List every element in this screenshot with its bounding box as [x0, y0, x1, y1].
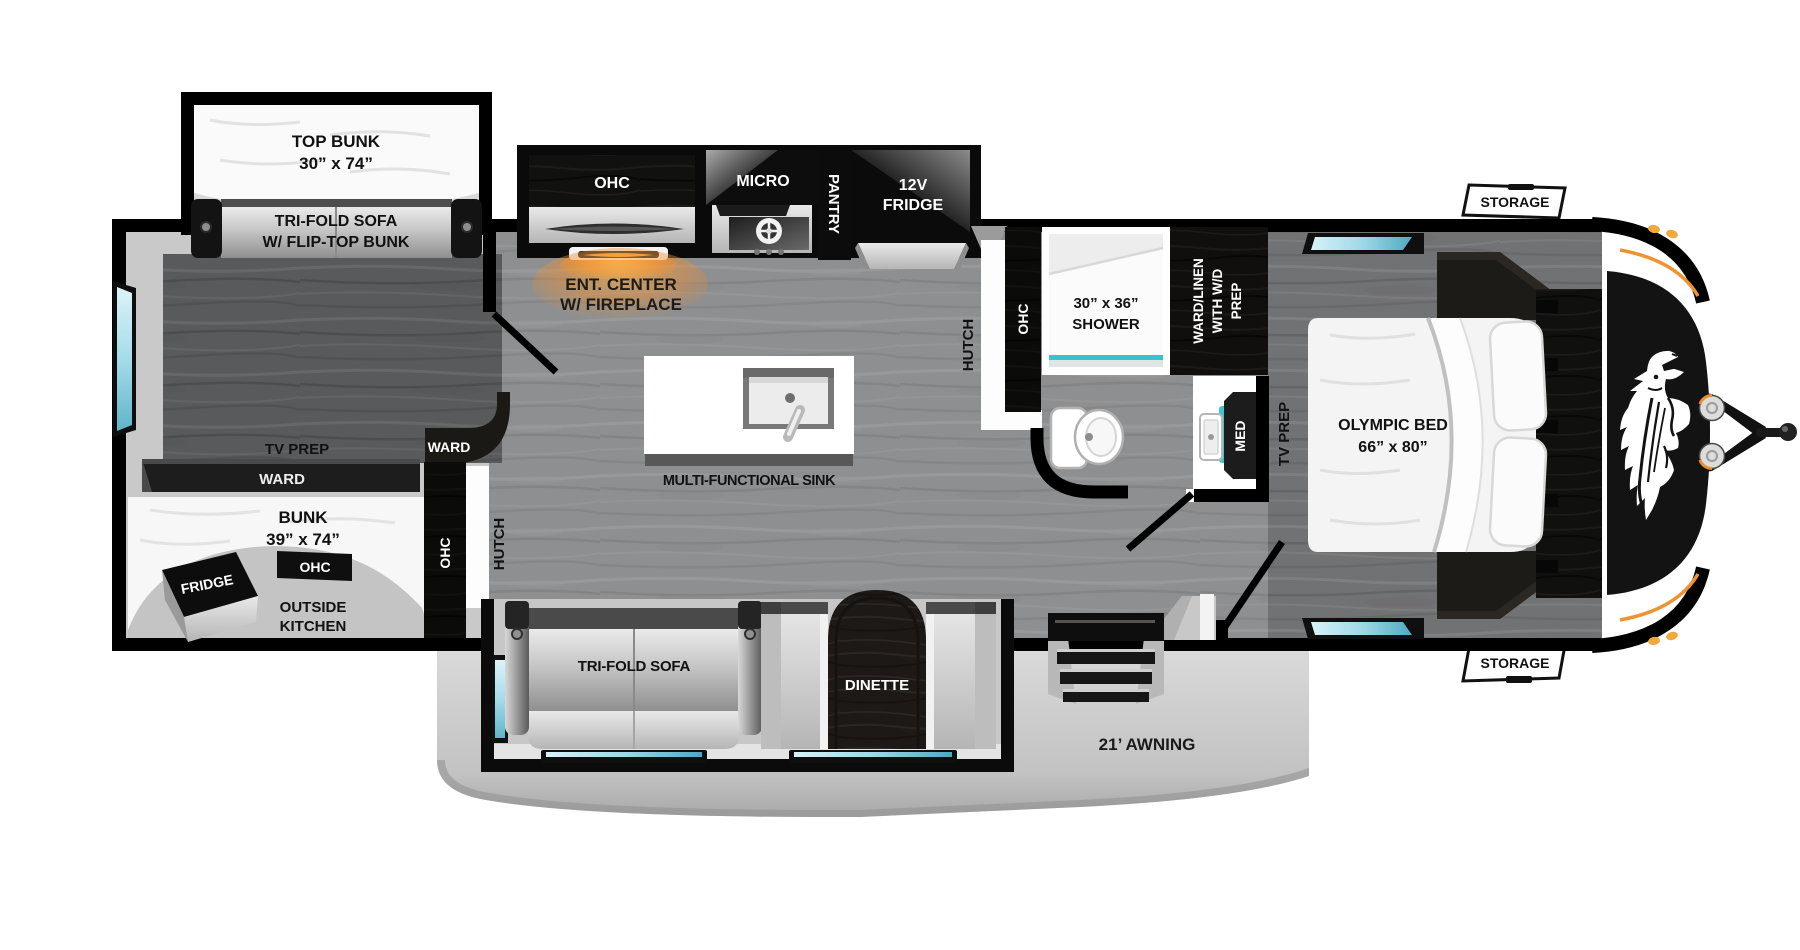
svg-text:30” x 74”: 30” x 74” [299, 154, 373, 173]
svg-text:21’ AWNING: 21’ AWNING [1099, 735, 1196, 754]
svg-text:TRI-FOLD SOFA: TRI-FOLD SOFA [578, 658, 691, 675]
svg-text:PREP: PREP [1229, 283, 1244, 320]
svg-text:STORAGE: STORAGE [1481, 655, 1550, 671]
svg-text:TOP BUNK: TOP BUNK [292, 132, 381, 151]
svg-text:30” x 36”: 30” x 36” [1073, 295, 1138, 312]
svg-text:HUTCH: HUTCH [491, 518, 508, 571]
svg-text:BUNK: BUNK [278, 508, 328, 527]
svg-text:SHOWER: SHOWER [1072, 316, 1140, 333]
svg-text:OLYMPIC BED: OLYMPIC BED [1338, 417, 1448, 434]
svg-text:W/ FIREPLACE: W/ FIREPLACE [560, 295, 682, 314]
svg-text:MICRO: MICRO [736, 173, 789, 190]
svg-text:WARD/LINEN: WARD/LINEN [1191, 258, 1206, 344]
svg-text:TV PREP: TV PREP [265, 441, 329, 458]
svg-text:TV PREP: TV PREP [1276, 402, 1293, 466]
svg-text:MULTI-FUNCTIONAL SINK: MULTI-FUNCTIONAL SINK [663, 473, 836, 489]
svg-text:WARD: WARD [259, 471, 305, 488]
svg-text:OHC: OHC [594, 175, 630, 192]
svg-text:PANTRY: PANTRY [825, 174, 842, 234]
svg-text:ENT. CENTER: ENT. CENTER [565, 275, 676, 294]
svg-text:OHC: OHC [1015, 303, 1031, 334]
svg-text:WITH W/D: WITH W/D [1210, 269, 1225, 334]
svg-text:OHC: OHC [299, 559, 330, 575]
svg-text:OUTSIDE: OUTSIDE [280, 599, 347, 616]
svg-text:HUTCH: HUTCH [960, 319, 977, 372]
svg-text:12V: 12V [899, 177, 928, 194]
svg-text:66” x 80”: 66” x 80” [1358, 439, 1427, 456]
svg-text:WARD: WARD [428, 439, 471, 455]
svg-text:FRIDGE: FRIDGE [883, 197, 944, 214]
svg-text:STORAGE: STORAGE [1481, 194, 1550, 210]
svg-text:TRI-FOLD SOFA: TRI-FOLD SOFA [275, 213, 398, 230]
svg-text:DINETTE: DINETTE [845, 677, 909, 694]
svg-text:KITCHEN: KITCHEN [280, 618, 347, 635]
svg-text:MED: MED [1232, 420, 1248, 451]
svg-text:W/ FLIP-TOP BUNK: W/ FLIP-TOP BUNK [263, 234, 410, 251]
svg-text:OHC: OHC [437, 537, 453, 568]
